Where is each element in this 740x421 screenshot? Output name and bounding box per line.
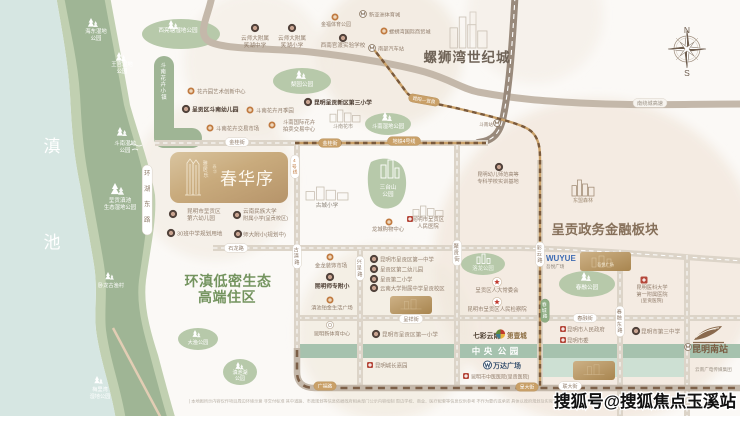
svg-text:斗南国际花卉: 斗南国际花卉 <box>283 118 316 126</box>
svg-text:昆明市第三中学: 昆明市第三中学 <box>641 328 681 336</box>
svg-text:斗南湿地公园: 斗南湿地公园 <box>372 122 404 130</box>
svg-text:昆明城长嘉园: 昆明城长嘉园 <box>375 362 407 370</box>
svg-text:联大街: 联大街 <box>562 383 577 390</box>
svg-text:王官湿地: 王官湿地 <box>111 60 133 68</box>
svg-text:春融街: 春融街 <box>577 314 593 322</box>
svg-text:昆明市呈贡区第一中学: 昆明市呈贡区第一中学 <box>380 256 435 264</box>
svg-text:南绕城高速: 南绕城高速 <box>637 99 663 107</box>
svg-text:云师大附属: 云师大附属 <box>241 34 269 42</box>
svg-text:拍卖交易中心: 拍卖交易中心 <box>283 125 316 133</box>
svg-text:池: 池 <box>44 233 61 252</box>
svg-text:梨园公园: 梨园公园 <box>291 80 314 88</box>
svg-text:石龙路: 石龙路 <box>228 244 244 252</box>
svg-text:斗南站: 斗南站 <box>479 121 493 128</box>
svg-text:昆明市呈贡区: 昆明市呈贡区 <box>412 215 445 223</box>
svg-text:公: 公 <box>498 346 507 356</box>
svg-text:公园: 公园 <box>117 68 128 75</box>
svg-text:东盟森林: 东盟森林 <box>573 197 593 204</box>
svg-text:海东湿地: 海东湿地 <box>85 27 107 35</box>
svg-text:南部汽车站: 南部汽车站 <box>378 45 404 53</box>
svg-text:公园: 公园 <box>120 147 131 154</box>
svg-text:昆明市人民政府: 昆明市人民政府 <box>567 326 605 334</box>
svg-text:滇池铂金生活广场: 滇池铂金生活广场 <box>311 304 353 312</box>
svg-text:大渔公园: 大渔公园 <box>188 338 209 346</box>
svg-text:搜狐号@搜狐焦点玉溪站: 搜狐号@搜狐焦点玉溪站 <box>554 391 737 411</box>
svg-text:昆明新体育中心: 昆明新体育中心 <box>314 330 350 338</box>
svg-text:螺蛳湾国际商贸城: 螺蛳湾国际商贸城 <box>389 28 431 36</box>
svg-text:呈贡第二小学: 呈贡第二小学 <box>380 276 413 284</box>
svg-text:第壹城: 第壹城 <box>507 331 527 340</box>
svg-text:吾悦广场: 吾悦广场 <box>546 263 565 270</box>
svg-text:公园: 公园 <box>91 35 102 42</box>
svg-text:师大附小(规划中): 师大附小(规划中) <box>243 231 286 239</box>
svg-text:斗南花卉月季园: 斗南花卉月季园 <box>256 107 294 115</box>
svg-text:笑湖小学: 笑湖小学 <box>281 41 304 49</box>
svg-text:昆明市委: 昆明市委 <box>567 337 589 345</box>
svg-text:中: 中 <box>472 346 481 356</box>
svg-text:云南大学附属中学呈贡校区: 云南大学附属中学呈贡校区 <box>380 285 445 293</box>
svg-text:附属小学(呈贡校区): 附属小学(呈贡校区) <box>243 214 288 222</box>
svg-text:金龙装饰市场: 金龙装饰市场 <box>315 262 348 270</box>
svg-text:呈贡区第二幼儿园: 呈贡区第二幼儿园 <box>380 266 423 274</box>
svg-text:金桂街: 金桂街 <box>322 140 337 147</box>
svg-text:斗南花卉交易市场: 斗南花卉交易市场 <box>216 125 260 133</box>
svg-text:呈贡政务金融板块: 呈贡政务金融板块 <box>551 221 659 237</box>
svg-text:园: 园 <box>510 346 519 356</box>
svg-text:昆明医科大学: 昆明医科大学 <box>636 283 667 291</box>
svg-text:昆明市呈贡区第一小学: 昆明市呈贡区第一小学 <box>382 331 438 339</box>
svg-text:云师大附属: 云师大附属 <box>278 34 306 42</box>
svg-text:呈贡区人大常委会: 呈贡区人大常委会 <box>475 286 519 294</box>
svg-text:西南官渡实验学校: 西南官渡实验学校 <box>321 41 366 49</box>
svg-text:金福体育公园: 金福体育公园 <box>321 21 351 28</box>
svg-text:30班中学规划用地: 30班中学规划用地 <box>177 230 223 238</box>
svg-text:万达广场: 万达广场 <box>492 361 521 370</box>
svg-text:N: N <box>684 25 690 35</box>
svg-text:(呈贡医院): (呈贡医院) <box>641 297 664 304</box>
svg-text:聚 贤 街: 聚 贤 街 <box>453 243 460 263</box>
svg-text:生态湿地公园: 生态湿地公园 <box>104 203 136 211</box>
svg-text:螺狮湾世纪城: 螺狮湾世纪城 <box>424 49 511 65</box>
svg-text:春 城 路: 春 城 路 <box>542 301 548 320</box>
svg-text:广福路: 广福路 <box>318 383 333 390</box>
svg-text:呈大街: 呈大街 <box>520 384 535 391</box>
svg-text:吾悦广场: 吾悦广场 <box>597 261 614 268</box>
svg-text:古 滇 路: 古 滇 路 <box>294 245 301 265</box>
svg-text:公园: 公园 <box>382 191 394 198</box>
svg-text:高端住区: 高端住区 <box>198 289 256 305</box>
svg-text:滇: 滇 <box>44 137 61 156</box>
svg-text:龙城购物中心: 龙城购物中心 <box>372 225 405 233</box>
svg-text:S: S <box>684 68 690 78</box>
svg-text:第六幼儿园: 第六幼儿园 <box>187 214 215 222</box>
svg-text:梅里湾: 梅里湾 <box>92 385 108 393</box>
svg-text:三台山: 三台山 <box>380 183 397 191</box>
svg-text:洛龙公园: 洛龙公园 <box>472 264 494 272</box>
svg-text:呈祥街: 呈祥街 <box>403 315 419 323</box>
svg-text:花卉园艺术创新中心: 花卉园艺术创新中心 <box>197 88 246 96</box>
svg-text:湿地公园: 湿地公园 <box>90 392 111 400</box>
svg-text:昆明市呈贡区: 昆明市呈贡区 <box>187 207 221 215</box>
svg-text:新亚洲体育城: 新亚洲体育城 <box>369 11 401 19</box>
svg-text:斗南花市: 斗南花市 <box>333 123 353 130</box>
svg-text:昆明师专附小: 昆明师专附小 <box>315 282 350 290</box>
svg-text:西亮塘湿地公园: 西亮塘湿地公园 <box>158 26 198 34</box>
svg-text:春 融 东 路: 春 融 东 路 <box>617 307 624 334</box>
svg-text:公园: 公园 <box>235 376 245 382</box>
svg-text:专科学校实训基地: 专科学校实训基地 <box>477 177 519 185</box>
svg-text:第一附属医院: 第一附属医院 <box>636 290 668 298</box>
svg-text:云南广电传媒集团: 云南广电传媒集团 <box>695 366 732 373</box>
svg-text:春 华: 春 华 <box>212 163 217 174</box>
svg-text:昆明市中医医院(呈贡医院): 昆明市中医医院(呈贡医院) <box>471 374 530 381</box>
svg-text:昆明幼儿师范高等: 昆明幼儿师范高等 <box>477 170 519 178</box>
svg-text:昆明呈贡新区第三小学: 昆明呈贡新区第三小学 <box>314 99 372 107</box>
svg-text:环滇低密生态: 环滇低密生态 <box>185 273 272 289</box>
svg-text:笑湖中学: 笑湖中学 <box>244 41 267 49</box>
svg-text:呈贡区斗南幼儿园: 呈贡区斗南幼儿园 <box>192 106 239 114</box>
svg-text:人民医院: 人民医院 <box>417 222 439 230</box>
svg-text:央: 央 <box>484 346 493 356</box>
svg-text:滇池湖: 滇池湖 <box>232 369 247 376</box>
svg-text:古城小学: 古城小学 <box>316 201 339 209</box>
svg-text:彩 云 路: 彩 云 路 <box>537 244 544 263</box>
svg-text:昆明南站: 昆明南站 <box>692 343 728 354</box>
svg-text:斗南湿地: 斗南湿地 <box>114 139 136 147</box>
svg-text:雅 居 乐: 雅 居 乐 <box>203 160 209 179</box>
svg-text:昆明市呈贡区人民检察院: 昆明市呈贡区人民检察院 <box>467 305 527 313</box>
svg-text:春融公园: 春融公园 <box>576 283 599 291</box>
svg-text:斗 南 花 卉 小 镇: 斗 南 花 卉 小 镇 <box>161 63 168 101</box>
svg-text:卧龙古渔村: 卧龙古渔村 <box>98 281 124 289</box>
svg-text:春华序: 春华序 <box>220 170 274 189</box>
svg-text:兴 呈 路: 兴 呈 路 <box>357 257 364 277</box>
svg-text:WUYUE: WUYUE <box>546 254 576 263</box>
svg-text:呈贡滇池: 呈贡滇池 <box>109 196 132 204</box>
svg-text:地铁4号线: 地铁4号线 <box>393 138 416 145</box>
svg-text:云南民族大学: 云南民族大学 <box>243 207 277 215</box>
svg-text:金桂街: 金桂街 <box>229 138 245 146</box>
